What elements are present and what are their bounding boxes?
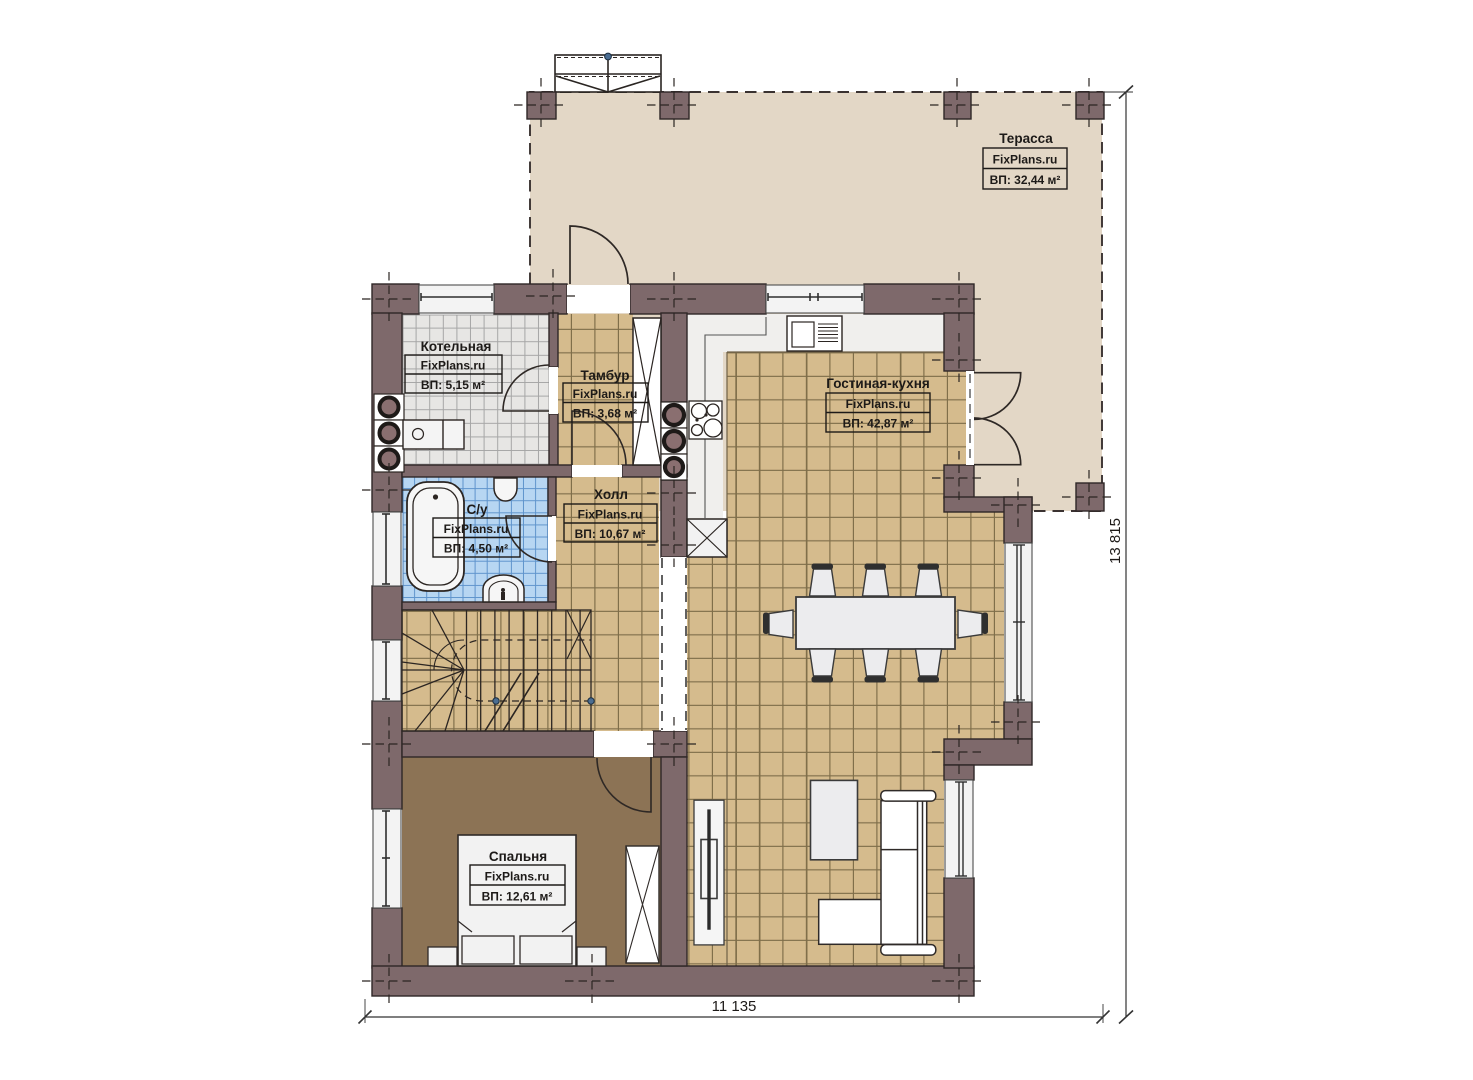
svg-text:Холл: Холл <box>594 487 628 502</box>
svg-text:ВП: 4,50 м²: ВП: 4,50 м² <box>444 542 508 556</box>
svg-text:FixPlans.ru: FixPlans.ru <box>846 397 911 411</box>
svg-text:Гостиная-кухня: Гостиная-кухня <box>826 376 929 391</box>
svg-text:С/у: С/у <box>466 502 488 517</box>
svg-text:ВП: 5,15 м²: ВП: 5,15 м² <box>421 378 485 392</box>
svg-text:ВП: 32,44 м²: ВП: 32,44 м² <box>990 173 1061 187</box>
svg-text:11 135: 11 135 <box>712 998 757 1015</box>
svg-text:13 815: 13 815 <box>1107 518 1124 564</box>
svg-text:ВП: 10,67 м²: ВП: 10,67 м² <box>575 527 646 541</box>
svg-text:FixPlans.ru: FixPlans.ru <box>485 870 550 884</box>
svg-text:ВП: 12,61 м²: ВП: 12,61 м² <box>482 890 553 904</box>
svg-text:Котельная: Котельная <box>421 339 492 354</box>
svg-text:FixPlans.ru: FixPlans.ru <box>993 153 1058 167</box>
svg-text:FixPlans.ru: FixPlans.ru <box>578 508 643 522</box>
svg-text:ВП: 42,87 м²: ВП: 42,87 м² <box>843 417 914 431</box>
svg-text:FixPlans.ru: FixPlans.ru <box>444 522 509 536</box>
svg-text:Спальня: Спальня <box>489 849 547 864</box>
svg-text:FixPlans.ru: FixPlans.ru <box>573 387 638 401</box>
svg-text:FixPlans.ru: FixPlans.ru <box>421 359 486 373</box>
svg-text:Терасса: Терасса <box>999 131 1053 146</box>
svg-text:Тамбур: Тамбур <box>581 368 630 383</box>
svg-text:ВП: 3,68 м²: ВП: 3,68 м² <box>573 407 637 421</box>
